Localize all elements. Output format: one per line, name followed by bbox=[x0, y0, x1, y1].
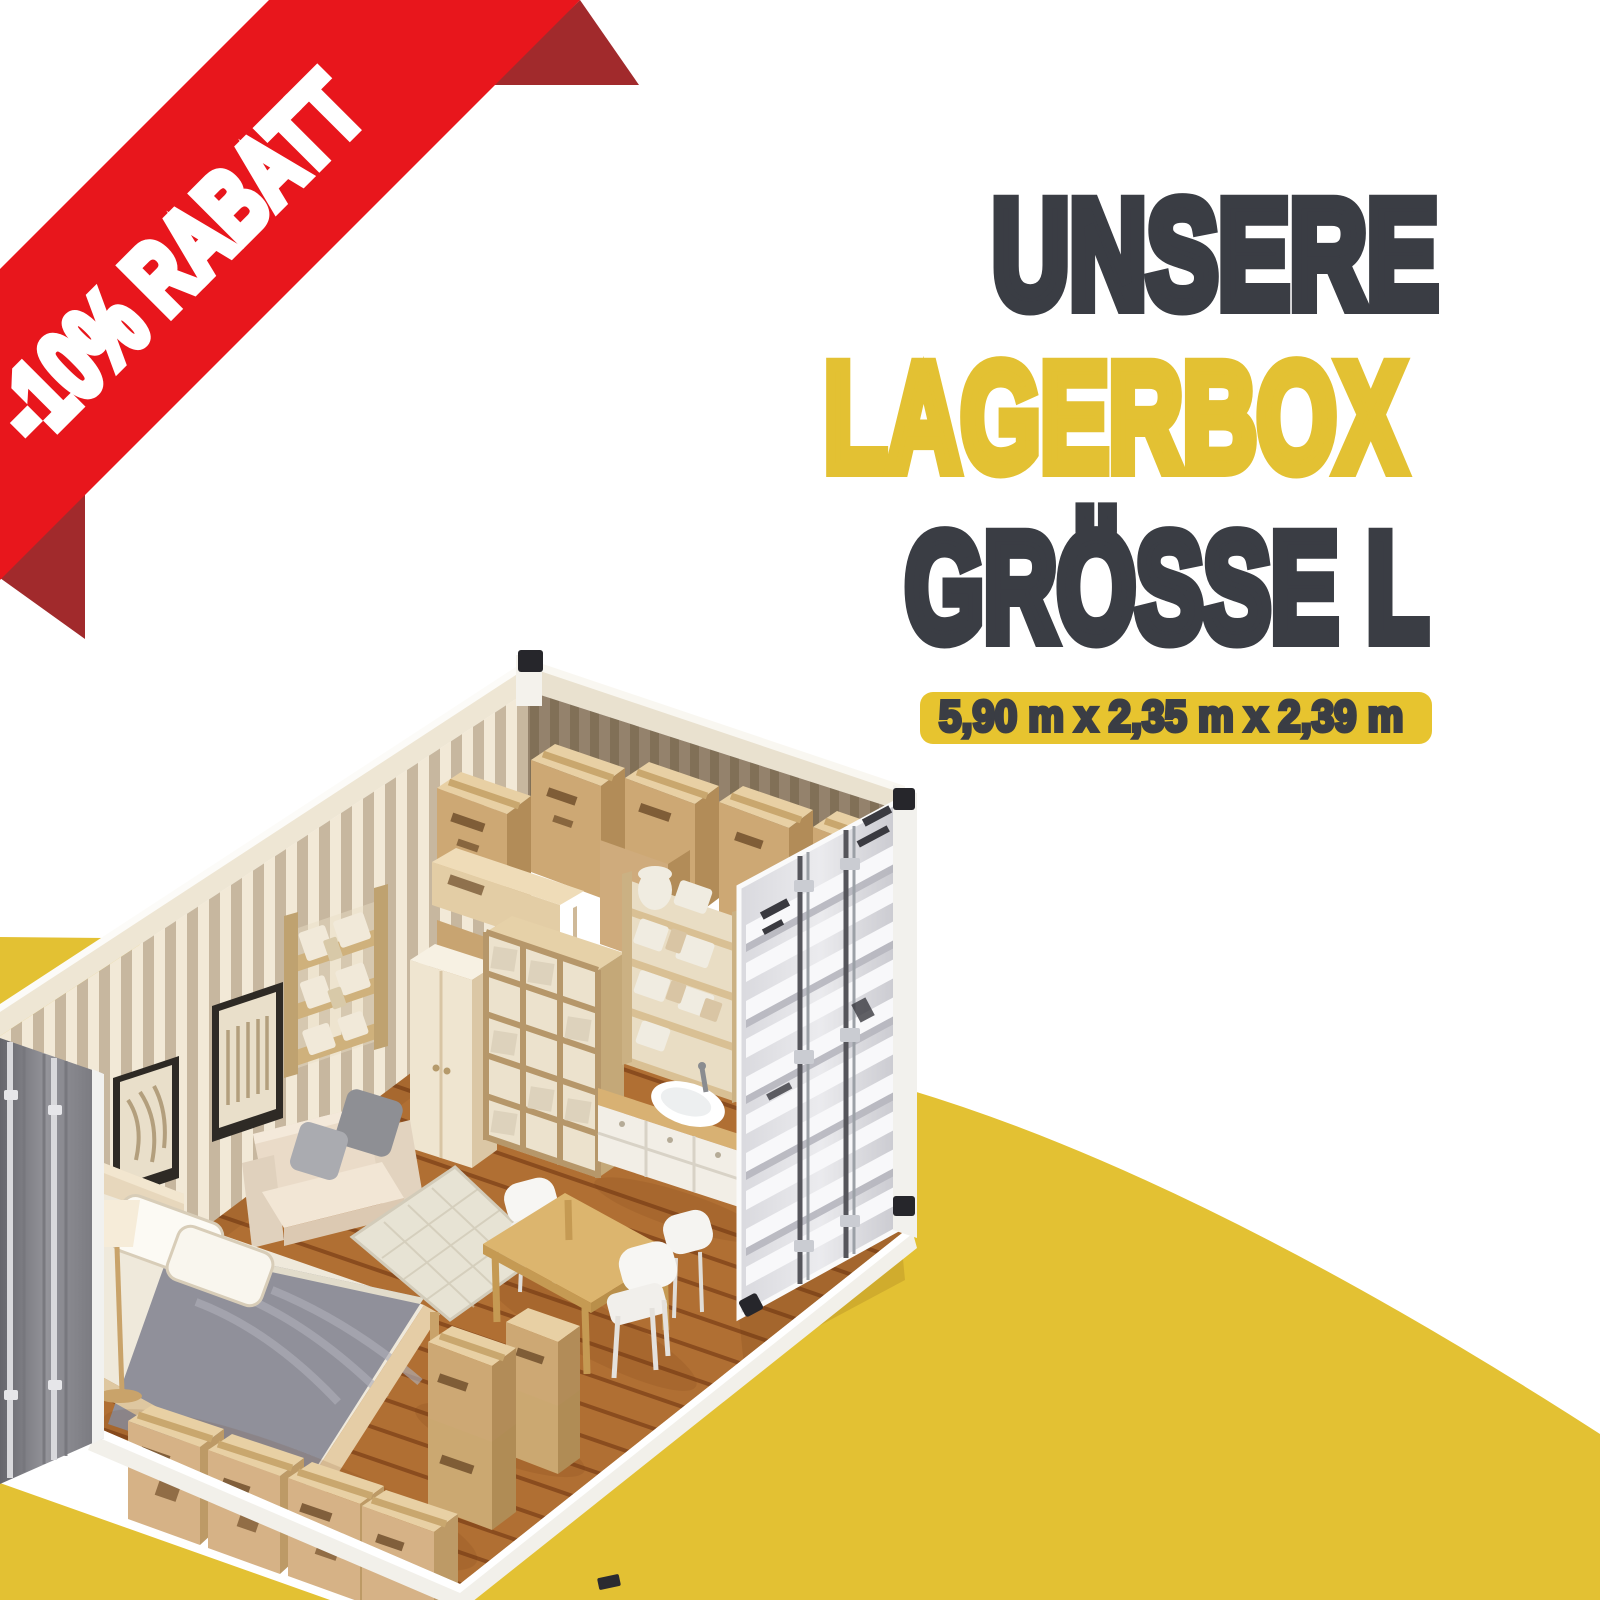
svg-text:GRÖSSE L: GRÖSSE L bbox=[905, 503, 1428, 673]
svg-text:LAGERBOX: LAGERBOX bbox=[824, 331, 1405, 503]
svg-text:UNSERE: UNSERE bbox=[992, 168, 1438, 339]
svg-text:5,90 m x 2,35 m x 2,39 m: 5,90 m x 2,35 m x 2,39 m bbox=[939, 691, 1403, 740]
